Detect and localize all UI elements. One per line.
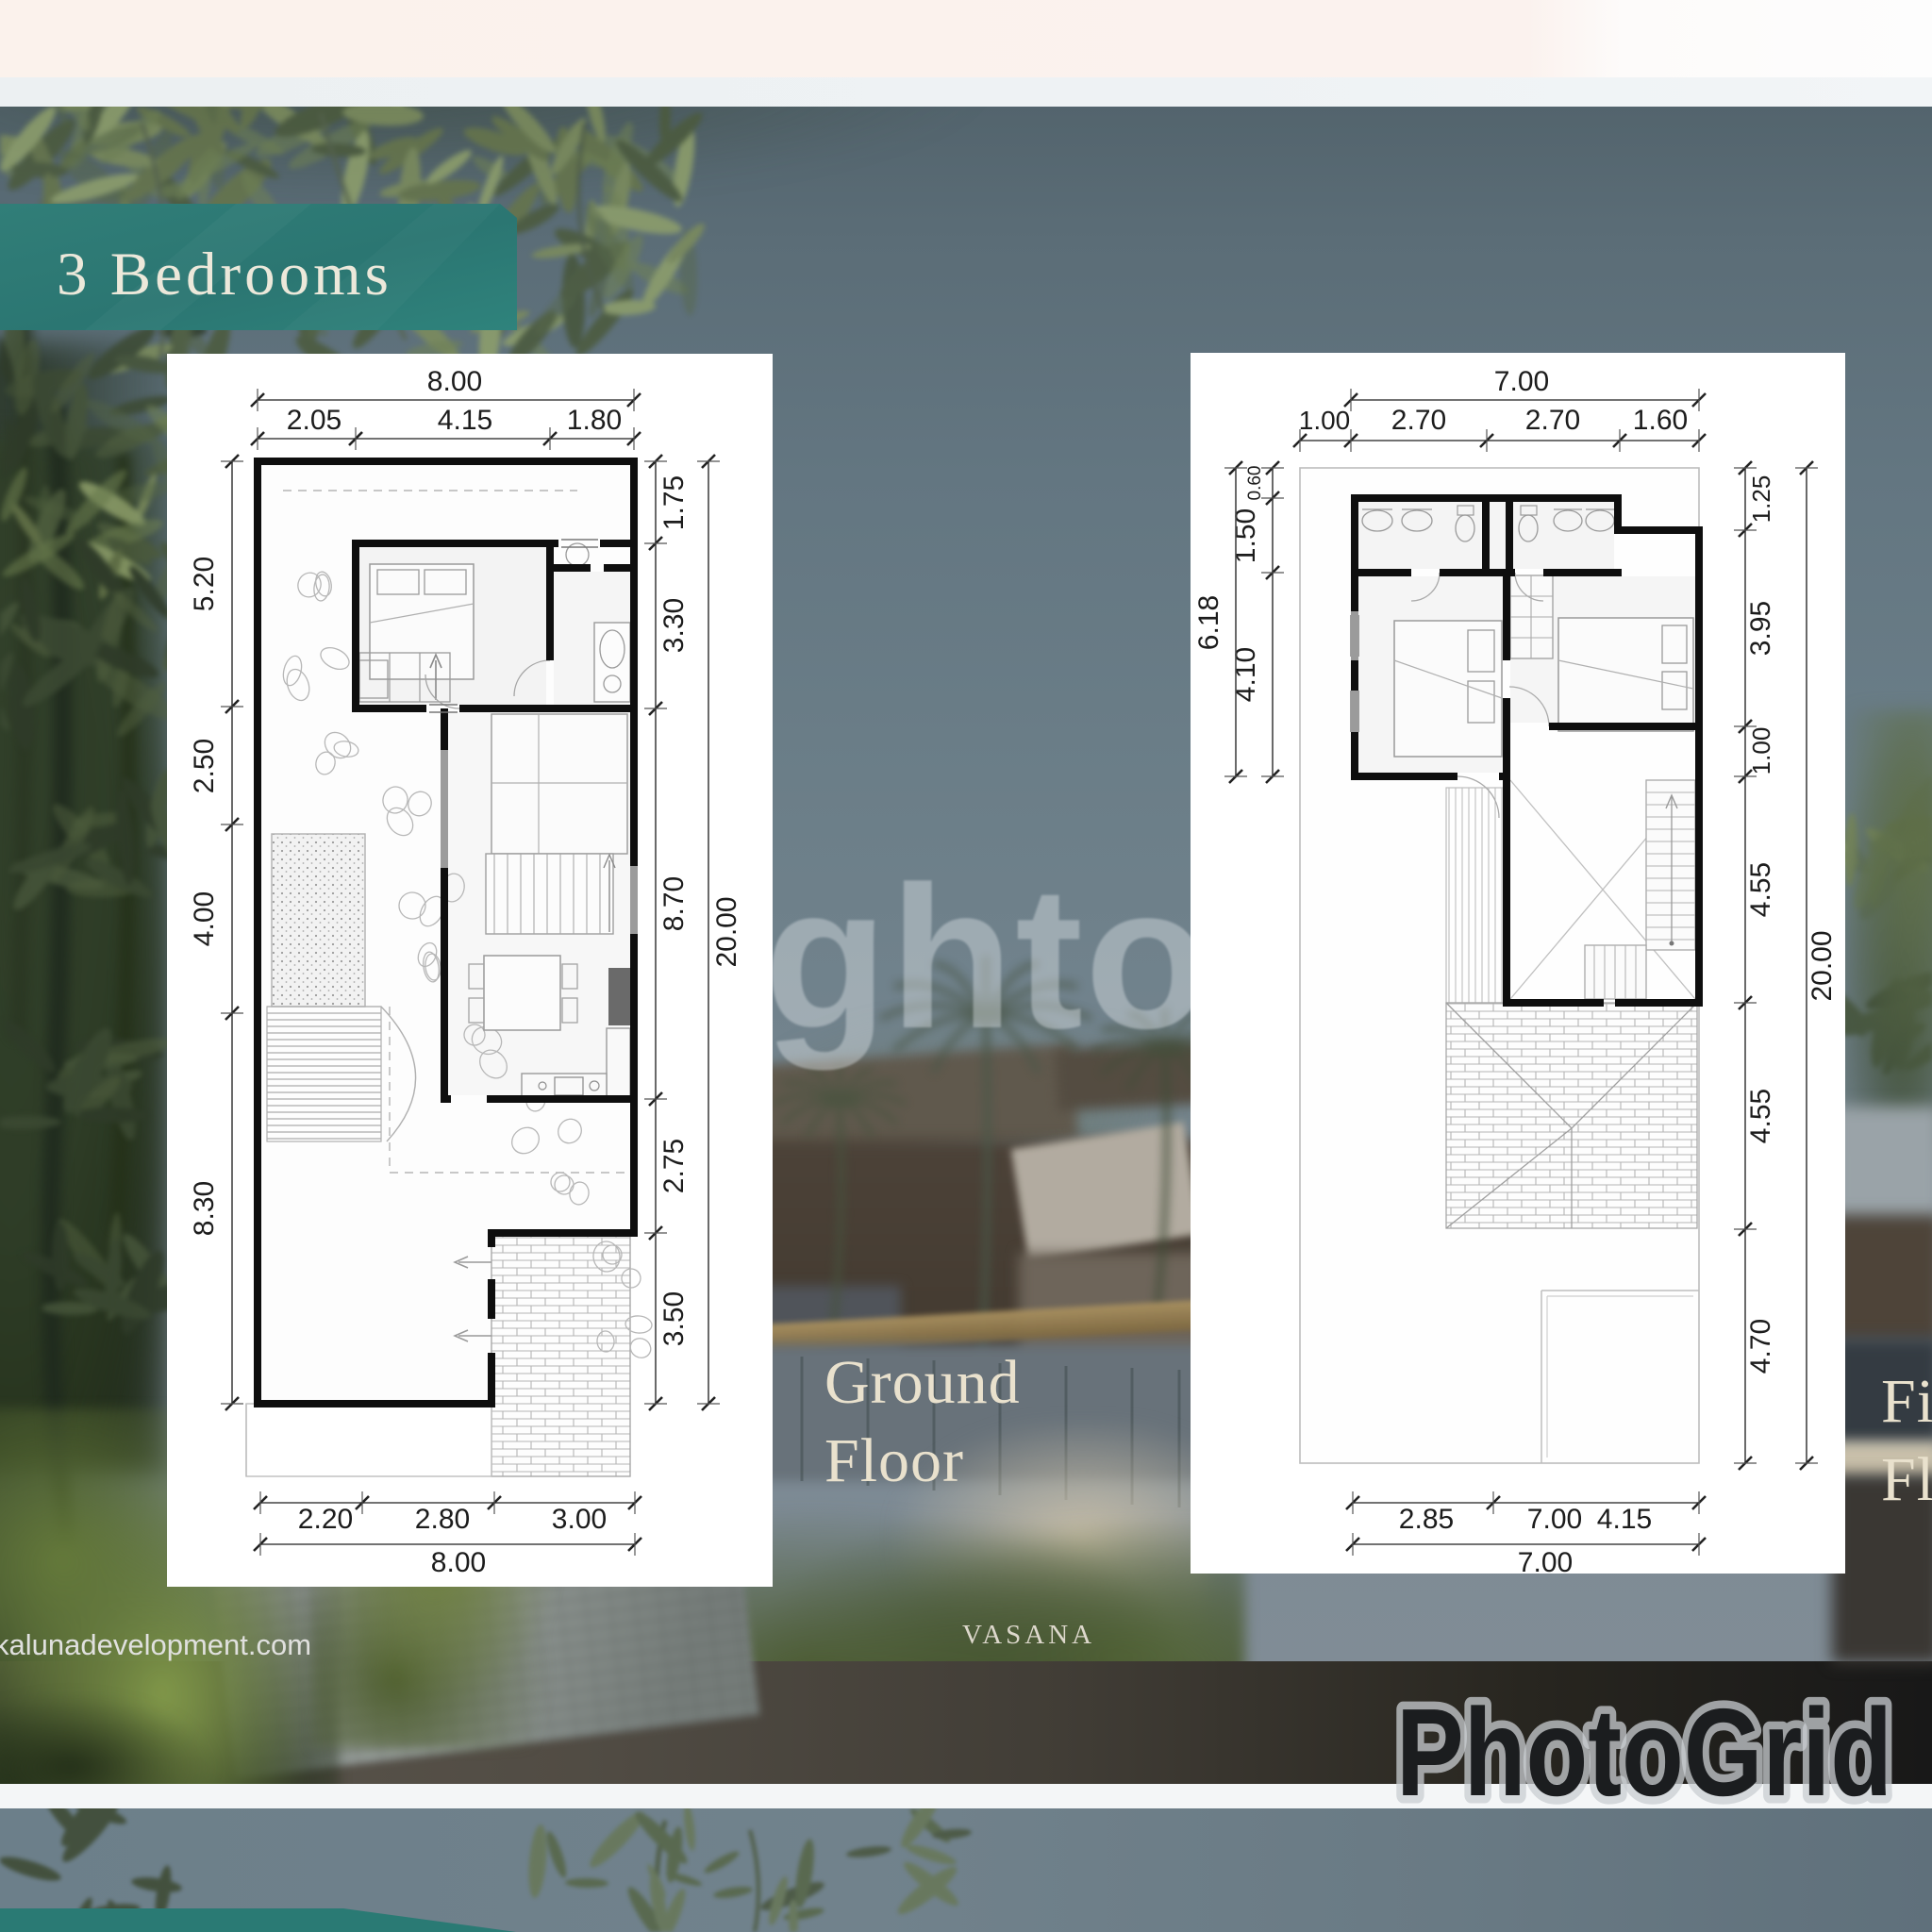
svg-text:3 Bedrooms: 3 Bedrooms: [57, 241, 392, 308]
svg-text:PhotoGrid: PhotoGrid: [1396, 1683, 1892, 1822]
svg-text:4.10: 4.10: [1230, 647, 1261, 702]
svg-text:8.70: 8.70: [658, 876, 690, 931]
svg-text:3.30: 3.30: [658, 598, 690, 653]
svg-text:4.00: 4.00: [189, 891, 220, 946]
svg-text:1.00: 1.00: [1747, 727, 1775, 775]
svg-text:7.00: 7.00: [1518, 1547, 1573, 1574]
svg-text:2.20: 2.20: [298, 1504, 353, 1535]
svg-text:4.55: 4.55: [1745, 862, 1776, 917]
svg-text:1.60: 1.60: [1633, 405, 1688, 436]
svg-text:2.75: 2.75: [658, 1139, 690, 1193]
svg-text:8.30: 8.30: [189, 1181, 220, 1236]
svg-text:2.70: 2.70: [1525, 405, 1580, 436]
svg-text:3.00: 3.00: [552, 1504, 607, 1535]
svg-text:2.05: 2.05: [287, 405, 341, 436]
svg-text:1.00: 1.00: [1299, 406, 1351, 435]
svg-text:4.15: 4.15: [1597, 1504, 1652, 1535]
svg-text:3.95: 3.95: [1745, 601, 1776, 656]
svg-text:7.00: 7.00: [1527, 1504, 1582, 1535]
svg-text:8.00: 8.00: [431, 1547, 486, 1578]
svg-text:2.85: 2.85: [1399, 1504, 1454, 1535]
svg-text:1.50: 1.50: [1230, 508, 1261, 563]
svg-text:2.50: 2.50: [189, 739, 220, 793]
svg-text:1.25: 1.25: [1747, 475, 1775, 524]
svg-text:5.20: 5.20: [189, 557, 220, 611]
svg-text:4.55: 4.55: [1745, 1089, 1776, 1143]
svg-text:20.00: 20.00: [1807, 930, 1838, 1001]
svg-text:8.00: 8.00: [427, 366, 482, 397]
svg-text:3.50: 3.50: [658, 1291, 690, 1346]
svg-text:1.80: 1.80: [567, 405, 622, 436]
svg-text:1.75: 1.75: [658, 475, 690, 530]
svg-text:4.15: 4.15: [438, 405, 492, 436]
svg-text:4.70: 4.70: [1745, 1319, 1776, 1374]
svg-text:0.60: 0.60: [1245, 466, 1265, 501]
svg-text:20.00: 20.00: [711, 896, 742, 967]
svg-text:7.00: 7.00: [1494, 366, 1549, 397]
svg-text:2.80: 2.80: [415, 1504, 470, 1535]
svg-text:2.70: 2.70: [1391, 405, 1446, 436]
svg-text:6.18: 6.18: [1193, 595, 1224, 650]
